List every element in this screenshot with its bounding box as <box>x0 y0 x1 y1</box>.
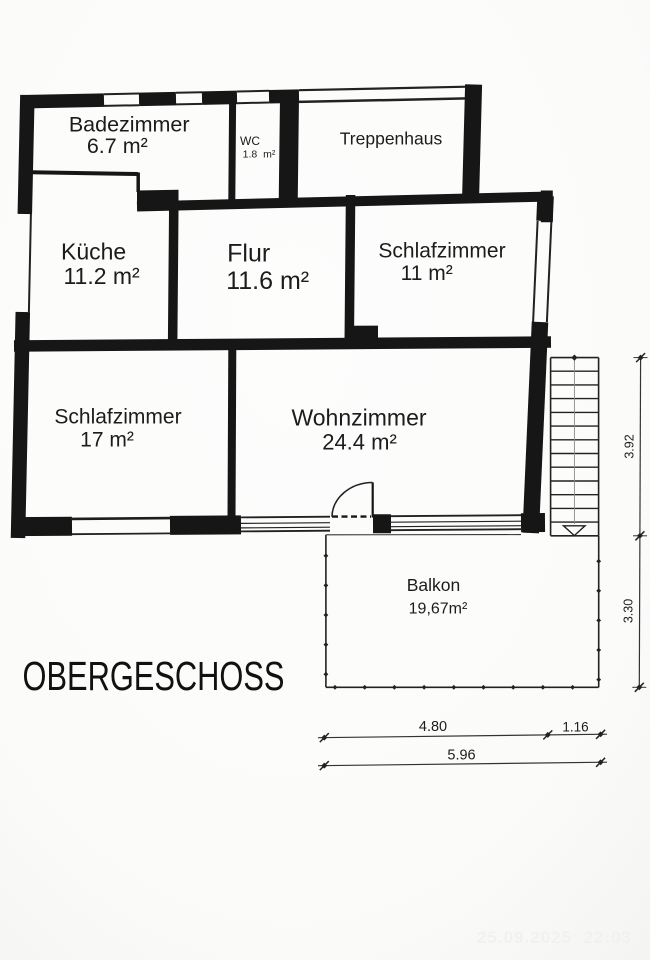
svg-text:19,67m²: 19,67m² <box>409 601 468 618</box>
svg-text:Balkon: Balkon <box>407 575 461 595</box>
svg-text:17 m²: 17 m² <box>80 429 134 452</box>
svg-text:24.4 m²: 24.4 m² <box>322 430 397 455</box>
svg-text:Wohnzimmer: Wohnzimmer <box>291 405 426 431</box>
svg-text:3.92: 3.92 <box>623 434 637 458</box>
svg-text:WC: WC <box>240 134 260 148</box>
svg-text:5.96: 5.96 <box>447 747 475 763</box>
svg-text:Flur: Flur <box>227 240 270 268</box>
svg-text:1.8 m²: 1.8 m² <box>243 149 276 161</box>
svg-text:3.30: 3.30 <box>622 599 636 623</box>
svg-text:OBERGESCHOSS: OBERGESCHOSS <box>23 653 285 699</box>
svg-text:Küche: Küche <box>61 239 126 265</box>
svg-text:Schlafzimmer: Schlafzimmer <box>54 406 181 429</box>
svg-text:1.16: 1.16 <box>562 720 588 735</box>
svg-text:11.2 m²: 11.2 m² <box>63 263 140 289</box>
svg-text:6.7 m²: 6.7 m² <box>87 134 148 158</box>
svg-text:Treppenhaus: Treppenhaus <box>340 129 443 149</box>
svg-text:11.6 m²: 11.6 m² <box>226 267 309 295</box>
svg-text:4.80: 4.80 <box>419 719 447 735</box>
svg-text:Schlafzimmer: Schlafzimmer <box>378 240 505 263</box>
svg-text:11 m²: 11 m² <box>401 262 453 285</box>
svg-text:25.09.2025 22:03: 25.09.2025 22:03 <box>477 928 632 947</box>
